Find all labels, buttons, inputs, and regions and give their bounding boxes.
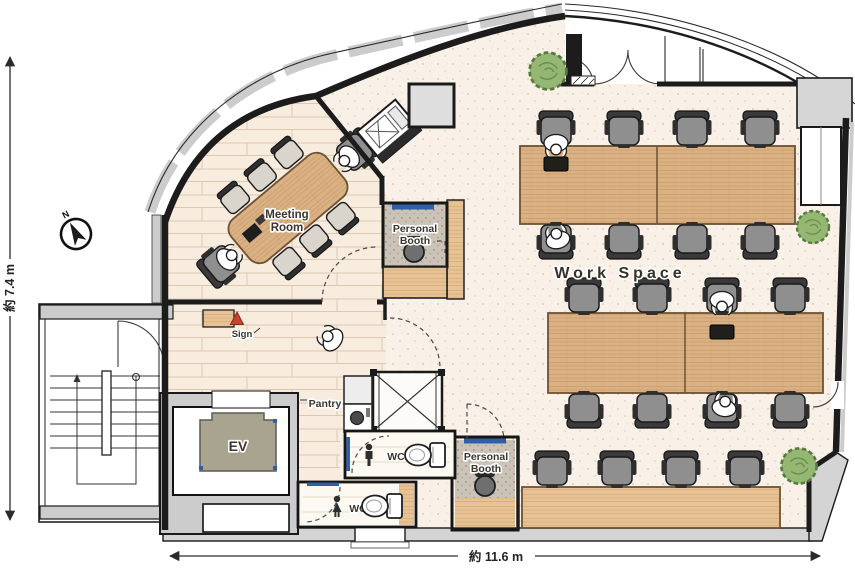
- personal-booth-upper: Personal Booth: [383, 200, 464, 299]
- meeting-room-label: Meeting: [265, 209, 308, 221]
- pantry-sink: [351, 412, 364, 425]
- stairs-bottom-wall: [40, 506, 164, 519]
- desk-bench: [522, 487, 780, 528]
- compass-icon: N: [50, 203, 96, 254]
- personal-booth-label: Personal: [393, 223, 437, 235]
- compass-north-label: N: [60, 209, 70, 221]
- floor-plan-page: EV: [0, 0, 855, 574]
- personal-booth-label: Personal: [464, 451, 508, 463]
- wc-label: WC: [387, 451, 405, 463]
- plant-icon: [797, 211, 829, 243]
- elevator-lobby-door: [203, 504, 289, 532]
- person: [710, 292, 734, 316]
- stairs-top-wall: [40, 305, 173, 319]
- wc-upper: WC: [345, 431, 455, 478]
- person: [544, 135, 568, 159]
- stair-stringer: [102, 371, 111, 455]
- sign-label: Sign: [232, 329, 253, 340]
- elevator: EV: [160, 391, 298, 534]
- plant-icon: [781, 448, 816, 483]
- storage-box: [409, 84, 454, 127]
- toilet-icon: [362, 494, 402, 518]
- width-dimension-label: 約 11.6 m: [469, 549, 523, 564]
- toilet-icon: [405, 443, 445, 467]
- height-dimension-label: 約 7.4 m: [2, 264, 17, 312]
- pipe-shaft: [369, 369, 445, 433]
- work-space-label: Work Space: [554, 265, 685, 282]
- svg-text:Booth: Booth: [400, 235, 430, 247]
- floor-plan-svg: EV: [0, 0, 855, 574]
- svg-text:Booth: Booth: [471, 463, 501, 475]
- elevator-label: EV: [229, 438, 248, 454]
- booth-desk-blue: [464, 439, 506, 444]
- plant-icon: [530, 53, 567, 90]
- laptop: [710, 325, 734, 339]
- stairs: [39, 304, 173, 522]
- booth-desk-blue: [392, 205, 434, 210]
- wc-lower: WC: [298, 482, 416, 527]
- svg-text:Room: Room: [271, 222, 304, 234]
- pantry-label: Pantry: [309, 398, 342, 410]
- pantry-cabinet: [344, 376, 372, 404]
- laptop: [544, 157, 568, 171]
